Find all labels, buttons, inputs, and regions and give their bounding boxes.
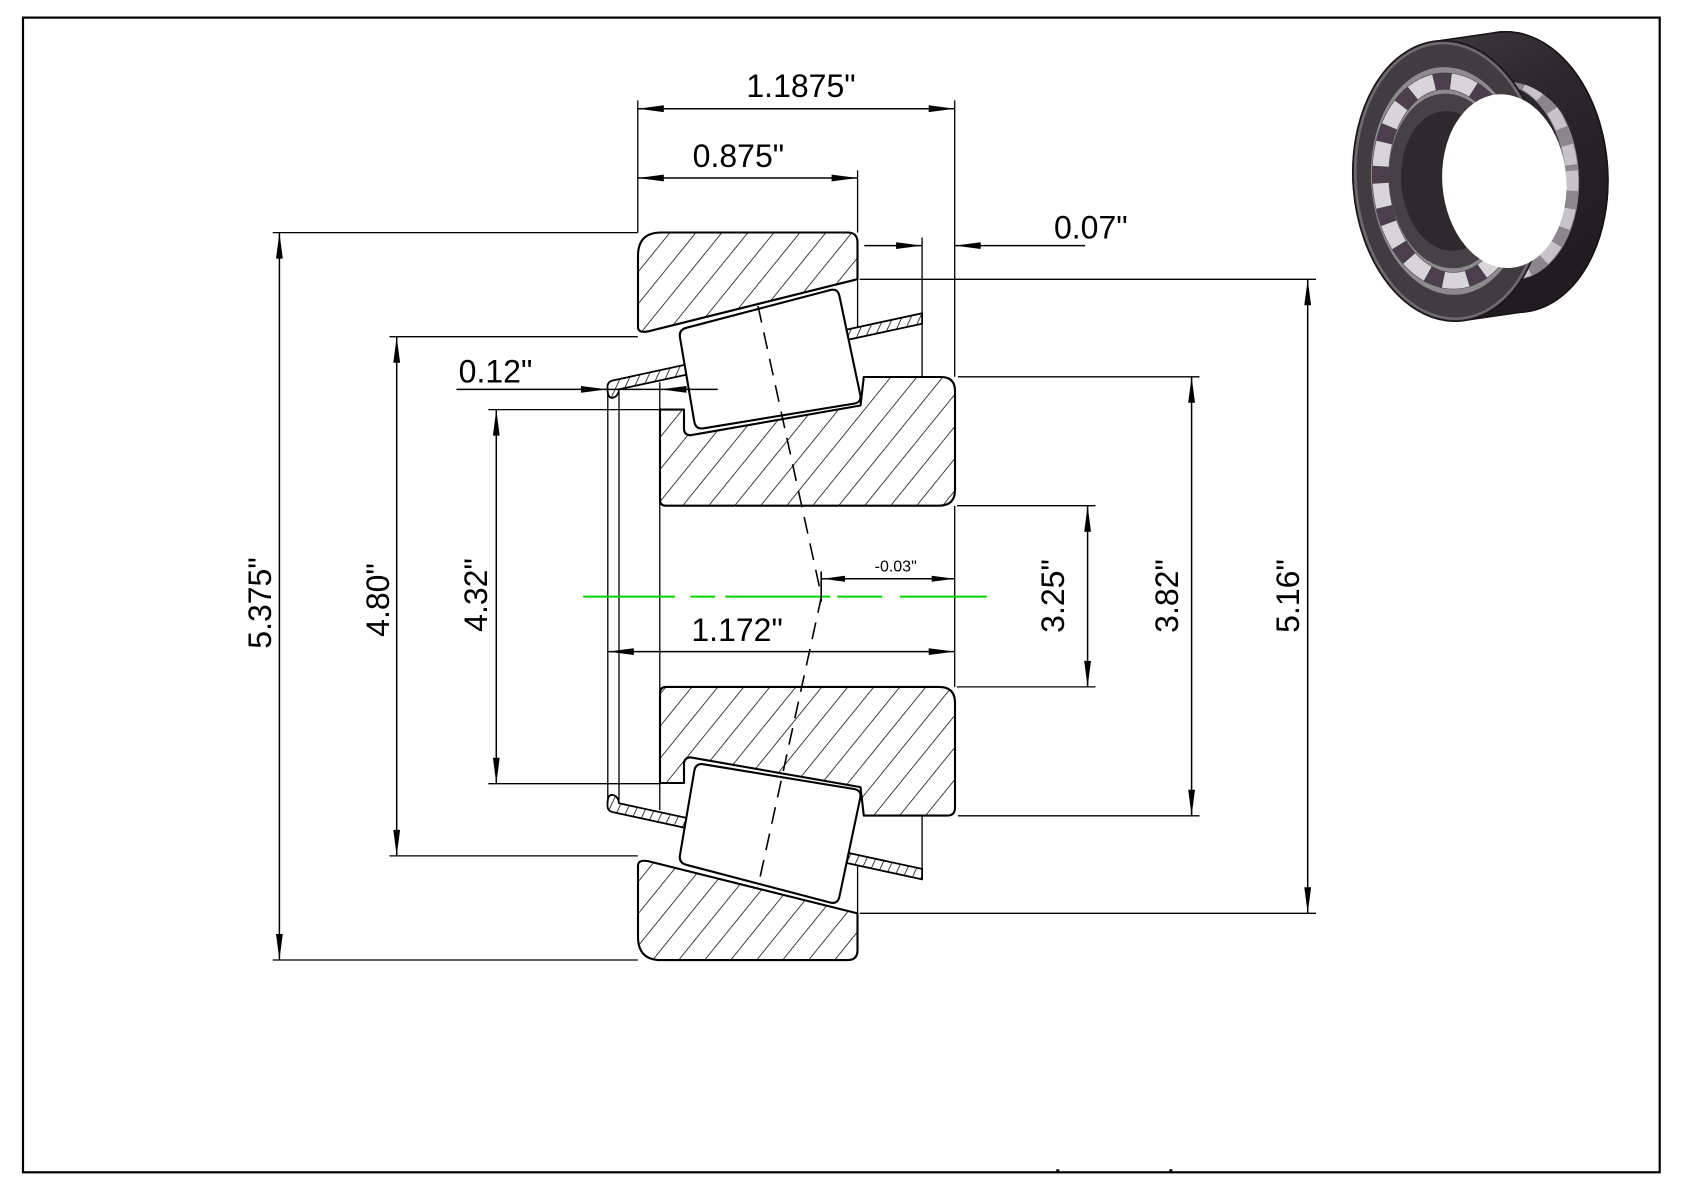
svg-text:5.16": 5.16" [1270,559,1306,633]
svg-text:1.172": 1.172" [691,612,782,648]
svg-text:0.07": 0.07" [1054,210,1128,246]
svg-text:1.1875": 1.1875" [746,68,855,104]
svg-text:-0.03": -0.03" [875,559,917,576]
svg-text:5.375": 5.375" [242,557,278,648]
svg-text:3.82": 3.82" [1149,559,1185,633]
svg-text:3.25": 3.25" [1035,559,1071,633]
svg-text:4.32": 4.32" [458,558,494,632]
svg-text:0.12": 0.12" [459,354,533,390]
svg-text:4.80": 4.80" [360,563,396,637]
svg-text:0.875": 0.875" [693,138,784,174]
